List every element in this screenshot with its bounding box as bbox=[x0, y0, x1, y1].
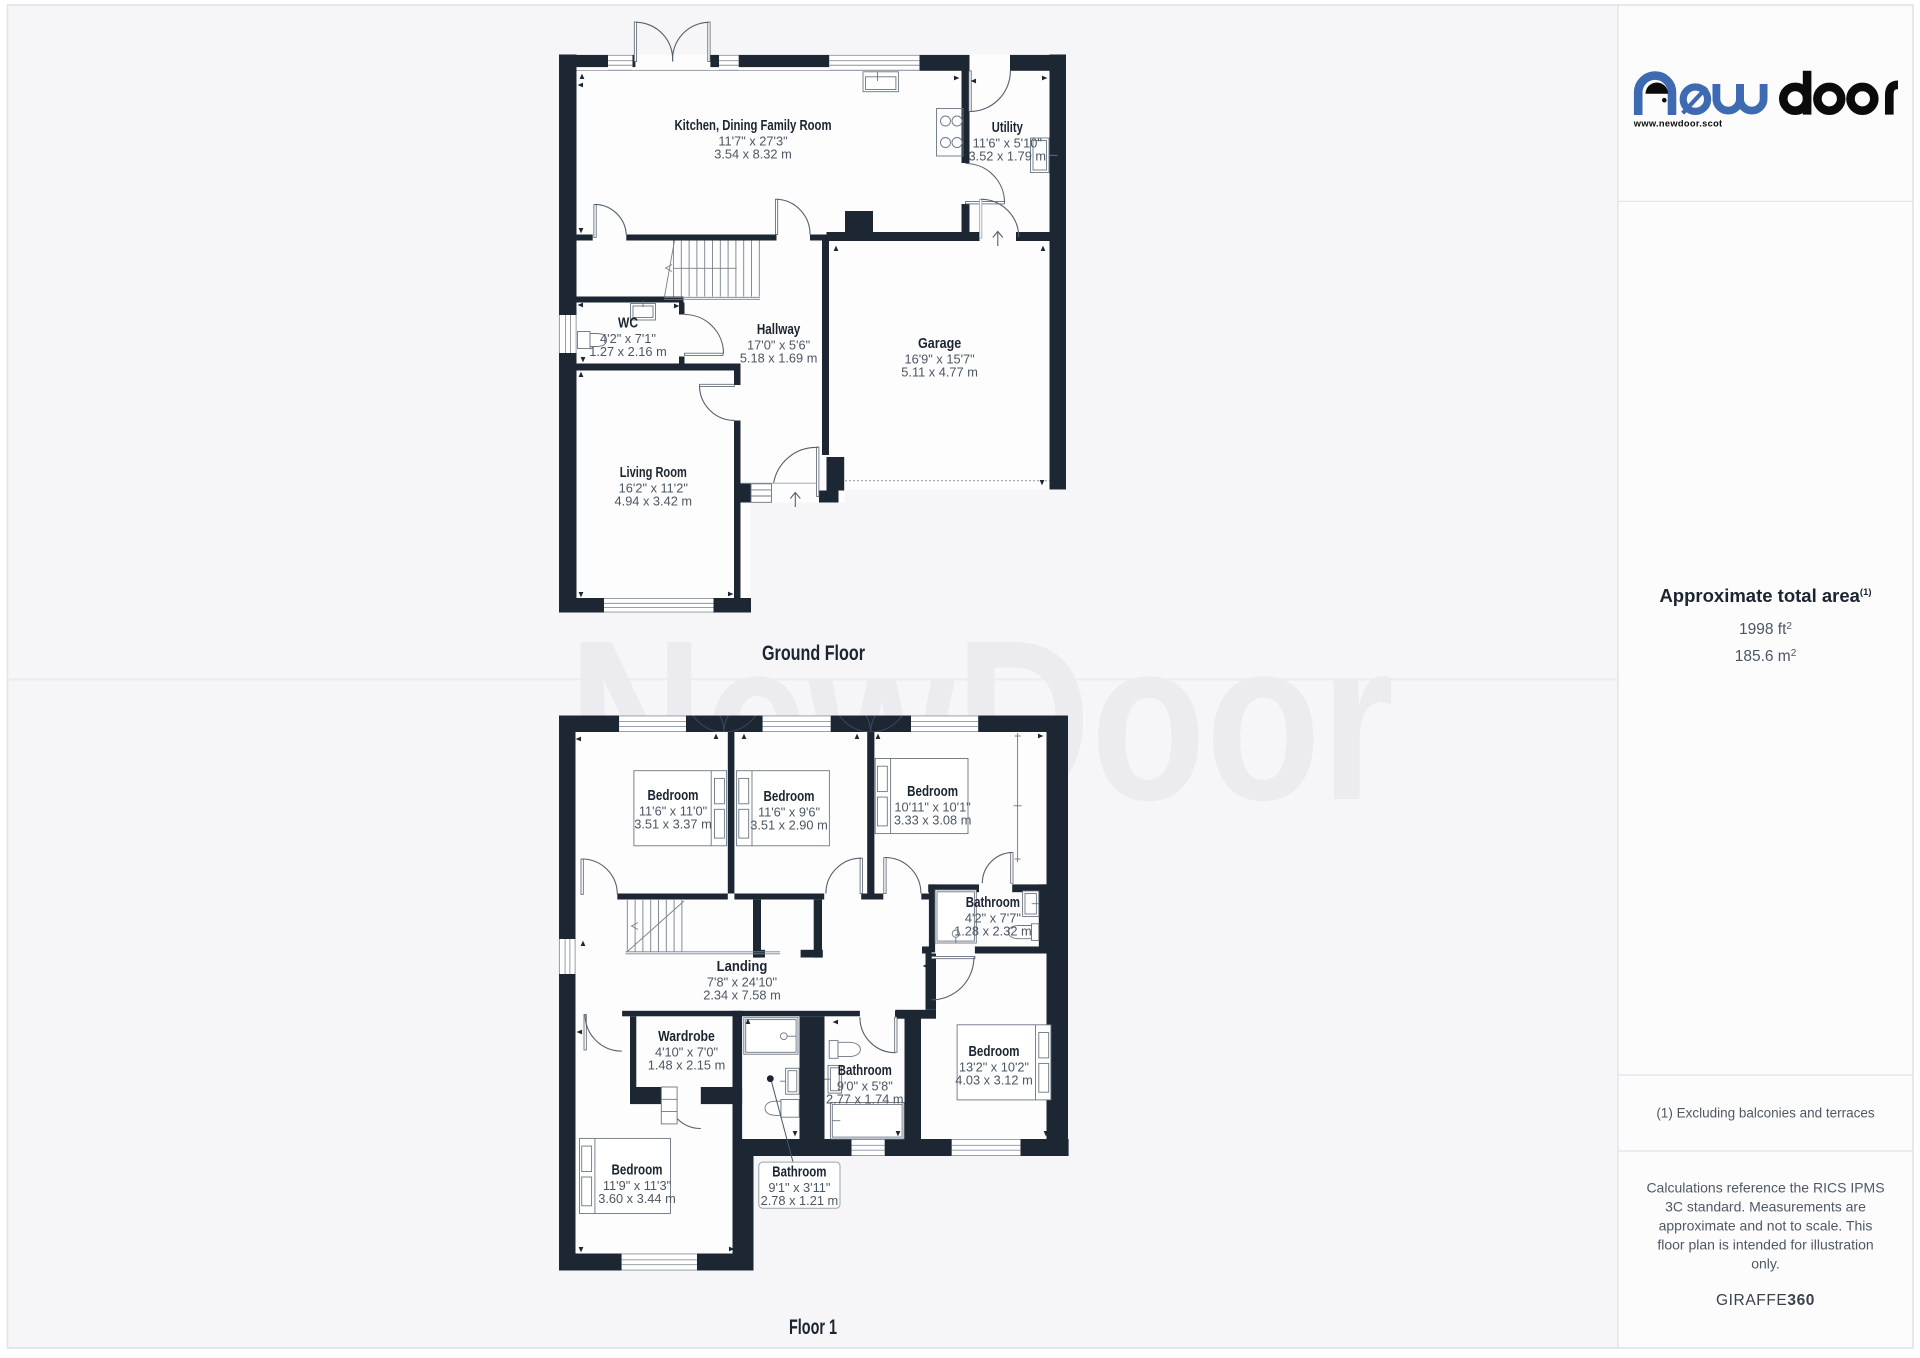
svg-text:Landing: Landing bbox=[717, 959, 768, 975]
svg-text:Bedroom: Bedroom bbox=[612, 1163, 663, 1179]
svg-text:4.03 x 3.12 m: 4.03 x 3.12 m bbox=[955, 1072, 1033, 1087]
svg-text:Kitchen, Dining Family Room: Kitchen, Dining Family Room bbox=[675, 118, 832, 134]
svg-text:Bedroom: Bedroom bbox=[907, 784, 958, 800]
svg-text:Living Room: Living Room bbox=[620, 465, 687, 481]
svg-text:Bathroom: Bathroom bbox=[966, 895, 1020, 911]
svg-text:3C standard. Measurements are: 3C standard. Measurements are bbox=[1665, 1199, 1866, 1215]
svg-text:1.28 x 2.32 m: 1.28 x 2.32 m bbox=[954, 923, 1032, 938]
svg-text:Wardrobe: Wardrobe bbox=[658, 1029, 715, 1045]
svg-text:185.6 m2: 185.6 m2 bbox=[1735, 648, 1797, 665]
svg-text:only.: only. bbox=[1751, 1256, 1780, 1272]
svg-text:3.54 x 8.32 m: 3.54 x 8.32 m bbox=[714, 147, 792, 162]
svg-text:2.77 x 1.74 m: 2.77 x 1.74 m bbox=[826, 1092, 904, 1107]
svg-text:Calculations reference the RIC: Calculations reference the RICS IPMS bbox=[1646, 1180, 1884, 1196]
svg-text:5.11 x 4.77 m: 5.11 x 4.77 m bbox=[901, 365, 978, 380]
svg-text:3.51 x 2.90 m: 3.51 x 2.90 m bbox=[750, 818, 828, 833]
svg-text:Ground Floor: Ground Floor bbox=[762, 641, 865, 665]
svg-text:GIRAFFE360: GIRAFFE360 bbox=[1716, 1292, 1815, 1309]
svg-text:Bedroom: Bedroom bbox=[969, 1044, 1020, 1060]
svg-text:Bathroom: Bathroom bbox=[772, 1165, 826, 1181]
svg-text:Bedroom: Bedroom bbox=[648, 788, 699, 804]
svg-text:floor plan is intended for ill: floor plan is intended for illustration bbox=[1657, 1237, 1873, 1253]
svg-text:3.51 x 3.37 m: 3.51 x 3.37 m bbox=[634, 817, 712, 832]
svg-text:3.60 x 3.44 m: 3.60 x 3.44 m bbox=[598, 1191, 676, 1206]
svg-text:4.94 x 3.42 m: 4.94 x 3.42 m bbox=[615, 494, 693, 509]
svg-text:Hallway: Hallway bbox=[757, 322, 800, 338]
svg-text:1998 ft2: 1998 ft2 bbox=[1739, 621, 1792, 638]
svg-text:Utility: Utility bbox=[992, 120, 1023, 136]
svg-text:3.33 x 3.08 m: 3.33 x 3.08 m bbox=[894, 813, 972, 828]
svg-text:Garage: Garage bbox=[918, 336, 961, 352]
svg-text:2.34 x 7.58 m: 2.34 x 7.58 m bbox=[703, 988, 781, 1003]
svg-text:Floor 1: Floor 1 bbox=[789, 1315, 837, 1339]
svg-text:Bedroom: Bedroom bbox=[764, 789, 815, 805]
svg-text:3.52 x 1.79 m: 3.52 x 1.79 m bbox=[969, 149, 1047, 164]
svg-text:WC: WC bbox=[618, 316, 638, 332]
svg-text:approximate and not to scale.: approximate and not to scale. This bbox=[1659, 1218, 1873, 1234]
svg-text:(1) Excluding balconies and te: (1) Excluding balconies and terraces bbox=[1656, 1106, 1875, 1121]
svg-text:5.18 x 1.69 m: 5.18 x 1.69 m bbox=[740, 351, 818, 366]
svg-text:Bathroom: Bathroom bbox=[838, 1063, 892, 1079]
svg-text:Approximate total area(1): Approximate total area(1) bbox=[1659, 585, 1871, 606]
svg-text:2.78 x 1.21 m: 2.78 x 1.21 m bbox=[761, 1193, 839, 1208]
svg-text:1.48 x 2.15 m: 1.48 x 2.15 m bbox=[648, 1058, 726, 1073]
svg-text:www.newdoor.scot: www.newdoor.scot bbox=[1633, 119, 1723, 129]
svg-text:1.27 x 2.16 m: 1.27 x 2.16 m bbox=[589, 344, 667, 359]
